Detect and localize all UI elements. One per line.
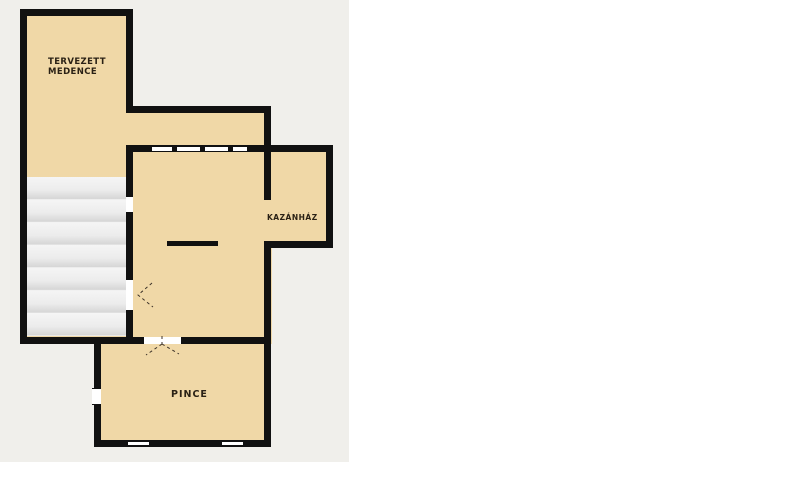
floorplan-canvas: TERVEZETT MEDENCE KAZÁNHÁZ PINCE [0, 0, 800, 494]
opening-stairs-door [126, 280, 133, 310]
window-main-top-4 [233, 146, 247, 152]
window-main-top-3 [205, 146, 228, 152]
opening-stairs-upper [126, 197, 133, 212]
wall-main-left [126, 145, 133, 344]
opening-cellar-door [144, 337, 181, 344]
wall-boiler-bottom [264, 241, 333, 248]
room-label-cellar: PINCE [171, 389, 208, 400]
wall-boiler-partition [264, 106, 271, 200]
wall-corridor-top [126, 106, 271, 113]
staircase [27, 177, 126, 336]
window-cellar-left [92, 388, 101, 405]
window-main-top-2 [177, 146, 200, 152]
wall-pool-right [126, 9, 133, 113]
wall-stub-main-room [167, 241, 218, 246]
room-label-boiler: KAZÁNHÁZ [267, 213, 318, 222]
room-label-pool: TERVEZETT MEDENCE [48, 58, 112, 77]
window-cellar-bottom-2 [222, 441, 243, 446]
room-boiler-floor [264, 145, 333, 248]
wall-cellar-bottom [94, 440, 271, 447]
wall-right-vertical [264, 241, 271, 447]
wall-boiler-right [326, 145, 333, 248]
window-main-top-1 [152, 146, 172, 152]
wall-pool-top [20, 9, 133, 16]
wall-pool-left [20, 9, 27, 344]
window-cellar-bottom-1 [128, 441, 149, 446]
